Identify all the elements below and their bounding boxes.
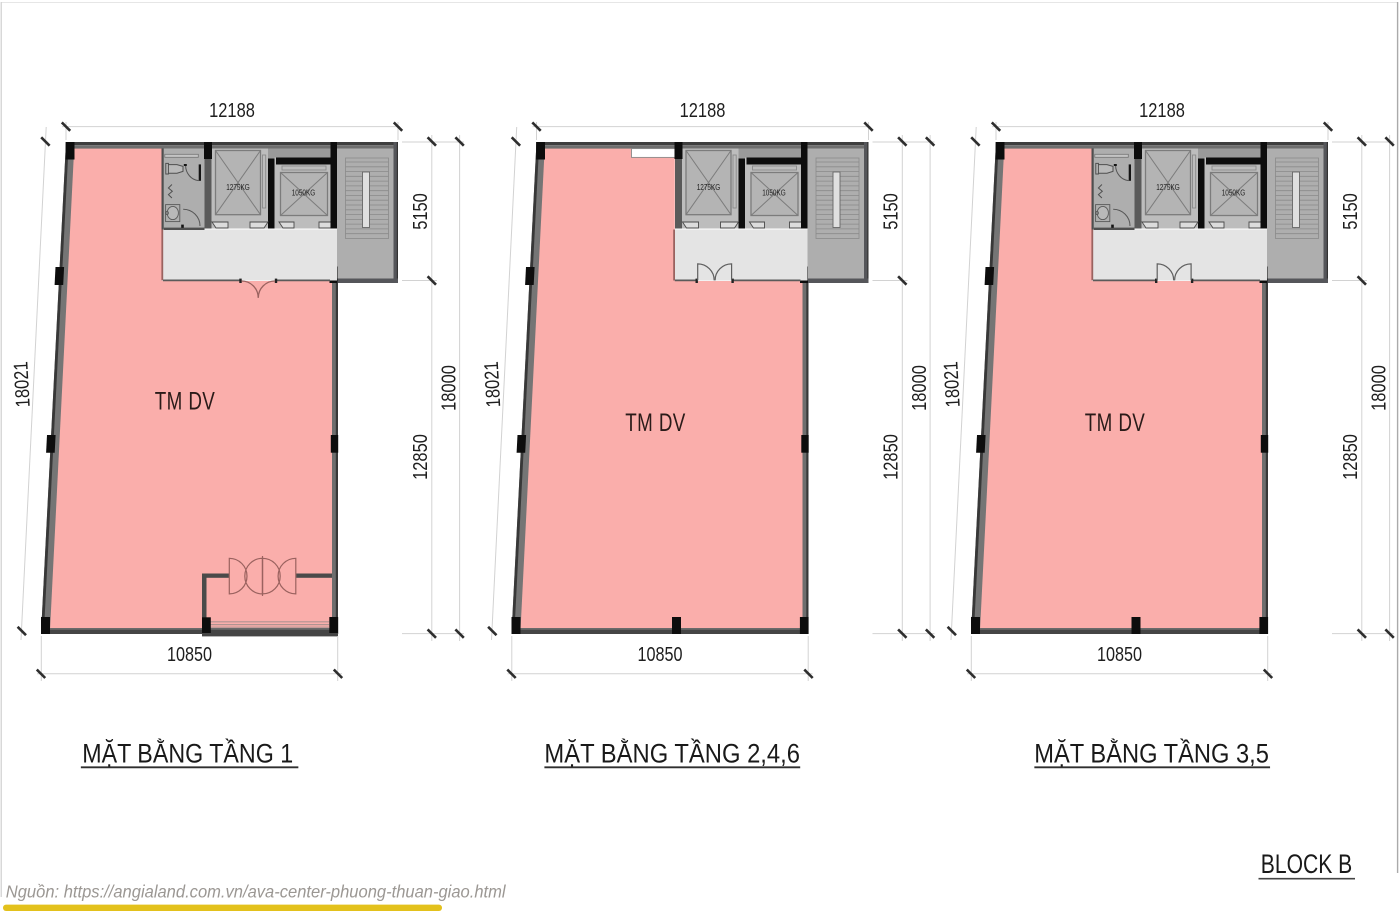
svg-text:1050KG: 1050KG — [762, 189, 786, 198]
svg-text:12850: 12850 — [881, 434, 903, 480]
svg-text:BLOCK B: BLOCK B — [1261, 849, 1353, 879]
svg-text:18000: 18000 — [909, 365, 931, 411]
svg-text:TM DV: TM DV — [625, 410, 685, 437]
svg-text:1275KG: 1275KG — [1156, 183, 1180, 192]
svg-text:18000: 18000 — [1369, 365, 1391, 411]
svg-text:18021: 18021 — [10, 361, 34, 408]
svg-text:12850: 12850 — [1340, 434, 1362, 480]
svg-text:1050KG: 1050KG — [292, 189, 316, 198]
svg-text:Nguồn: https://angialand.com.v: Nguồn: https://angialand.com.vn/ava-cent… — [6, 881, 507, 901]
svg-text:1275KG: 1275KG — [697, 183, 721, 192]
svg-text:10850: 10850 — [167, 644, 212, 666]
svg-text:TM DV: TM DV — [155, 389, 215, 416]
svg-text:12188: 12188 — [680, 100, 726, 122]
svg-text:5150: 5150 — [410, 193, 432, 230]
svg-text:18021: 18021 — [940, 361, 964, 408]
svg-text:5150: 5150 — [1340, 193, 1362, 230]
svg-text:10850: 10850 — [1097, 644, 1142, 666]
svg-text:10850: 10850 — [638, 644, 683, 666]
svg-text:MẶT BẰNG TẦNG 1: MẶT BẰNG TẦNG 1 — [82, 739, 293, 769]
svg-text:12188: 12188 — [209, 100, 255, 122]
svg-text:12188: 12188 — [1139, 100, 1185, 122]
svg-text:TM DV: TM DV — [1085, 410, 1145, 437]
svg-text:12850: 12850 — [410, 434, 432, 480]
svg-text:18000: 18000 — [439, 365, 461, 411]
svg-text:18021: 18021 — [481, 361, 505, 408]
svg-text:1050KG: 1050KG — [1222, 189, 1246, 198]
svg-text:MẶT BẰNG TẦNG 3,5: MẶT BẰNG TẦNG 3,5 — [1034, 739, 1269, 769]
svg-text:1275KG: 1275KG — [226, 183, 250, 192]
svg-text:5150: 5150 — [881, 193, 903, 230]
svg-text:MẶT BẰNG TẦNG 2,4,6: MẶT BẰNG TẦNG 2,4,6 — [544, 739, 800, 769]
